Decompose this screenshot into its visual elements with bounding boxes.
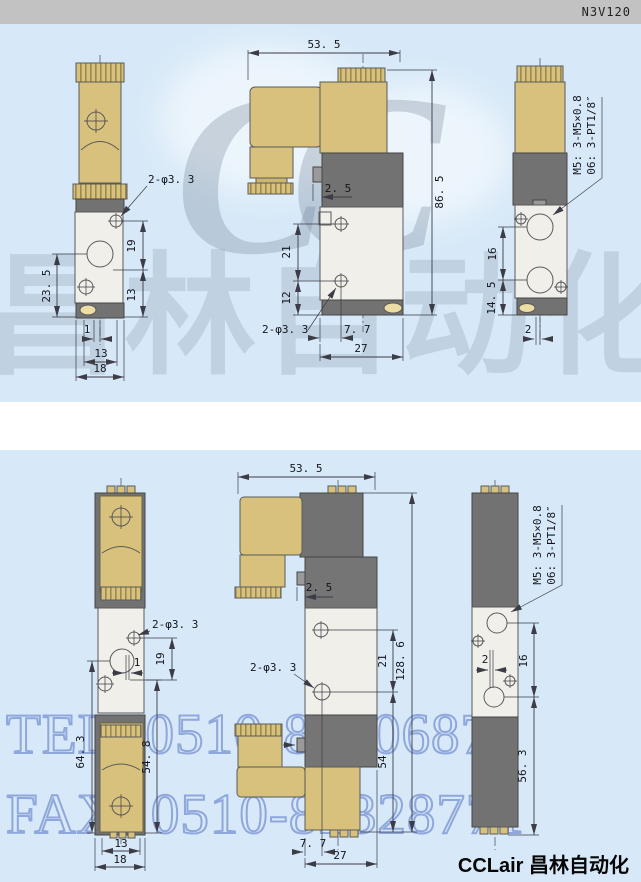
dim-label: 2-φ3. 3	[148, 173, 194, 186]
dim-label: 2-φ3. 3	[250, 661, 296, 674]
dim-label: 27	[354, 342, 367, 355]
model-label: N3V120	[0, 0, 641, 24]
dim-label: 18	[93, 362, 106, 375]
dim-label: 2. 5	[306, 581, 333, 594]
brand-footer: CCLair 昌林自动化	[458, 849, 629, 878]
dim-label: 56. 3	[516, 749, 529, 782]
thread-callout: 06: 3-PT1/8″	[545, 505, 558, 584]
thread-callout: 06: 3-PT1/8″	[585, 95, 598, 174]
dim-label: 53. 5	[289, 462, 322, 475]
dim-label: 54. 8	[140, 740, 153, 773]
dim-label: 13	[94, 347, 107, 360]
n3v110-drawing: 2-φ3. 3 19 13 23. 5 1 13 18	[0, 24, 641, 402]
dim-label: 2	[482, 653, 489, 666]
drawing-panel-n3v110: CC 昌林自动化	[0, 24, 641, 402]
model-header-n3v120: N3V120	[0, 0, 641, 24]
catalog-page: N3V110 CC 昌林自动化	[0, 0, 641, 882]
dim-label: 2-φ3. 3	[152, 618, 198, 631]
dim-label: 53. 5	[307, 38, 340, 51]
front-view-n3v110	[73, 55, 127, 345]
dim-label: 12	[280, 291, 293, 304]
dim-label: 7. 7	[300, 837, 327, 850]
drawing-panel-n3v120: TEL: 0510-82306871 FAX: 0510-82328771	[0, 450, 641, 882]
dim-label: 54	[376, 755, 389, 769]
port-view-n3v110	[513, 58, 568, 346]
dim-label: 128. 6	[394, 641, 407, 681]
dim-label: 2. 5	[325, 182, 352, 195]
dim-label: 1	[134, 656, 141, 669]
dim-label: 13	[125, 288, 138, 301]
thread-callout: M5: 3-M5×0.8	[531, 505, 544, 584]
dim-label: 1	[84, 323, 91, 336]
n3v120-drawing: 2-φ3. 3 19 1 64. 3 54. 8 13	[0, 450, 641, 882]
dim-label: 64. 3	[74, 735, 87, 768]
dim-label: 2-φ3. 3	[262, 323, 308, 336]
thread-callout: M5: 3-M5×0.8	[571, 95, 584, 174]
dim-label: 18	[113, 853, 126, 866]
dim-label: 21	[376, 654, 389, 667]
dim-label: 21	[280, 245, 293, 258]
dim-label: 23. 5	[40, 269, 53, 302]
dim-label: 14. 5	[485, 281, 498, 314]
dim-label: 27	[333, 849, 346, 862]
dim-label: 19	[125, 239, 138, 252]
dim-label: 2	[525, 323, 532, 336]
dim-label: 7. 7	[344, 323, 371, 336]
dim-label: 13	[114, 837, 127, 850]
dim-label: 16	[517, 654, 530, 667]
dim-label: 16	[486, 247, 499, 260]
dim-label: 19	[154, 652, 167, 665]
dim-label: 86. 5	[433, 175, 446, 208]
port-view-n3v120	[471, 480, 518, 850]
